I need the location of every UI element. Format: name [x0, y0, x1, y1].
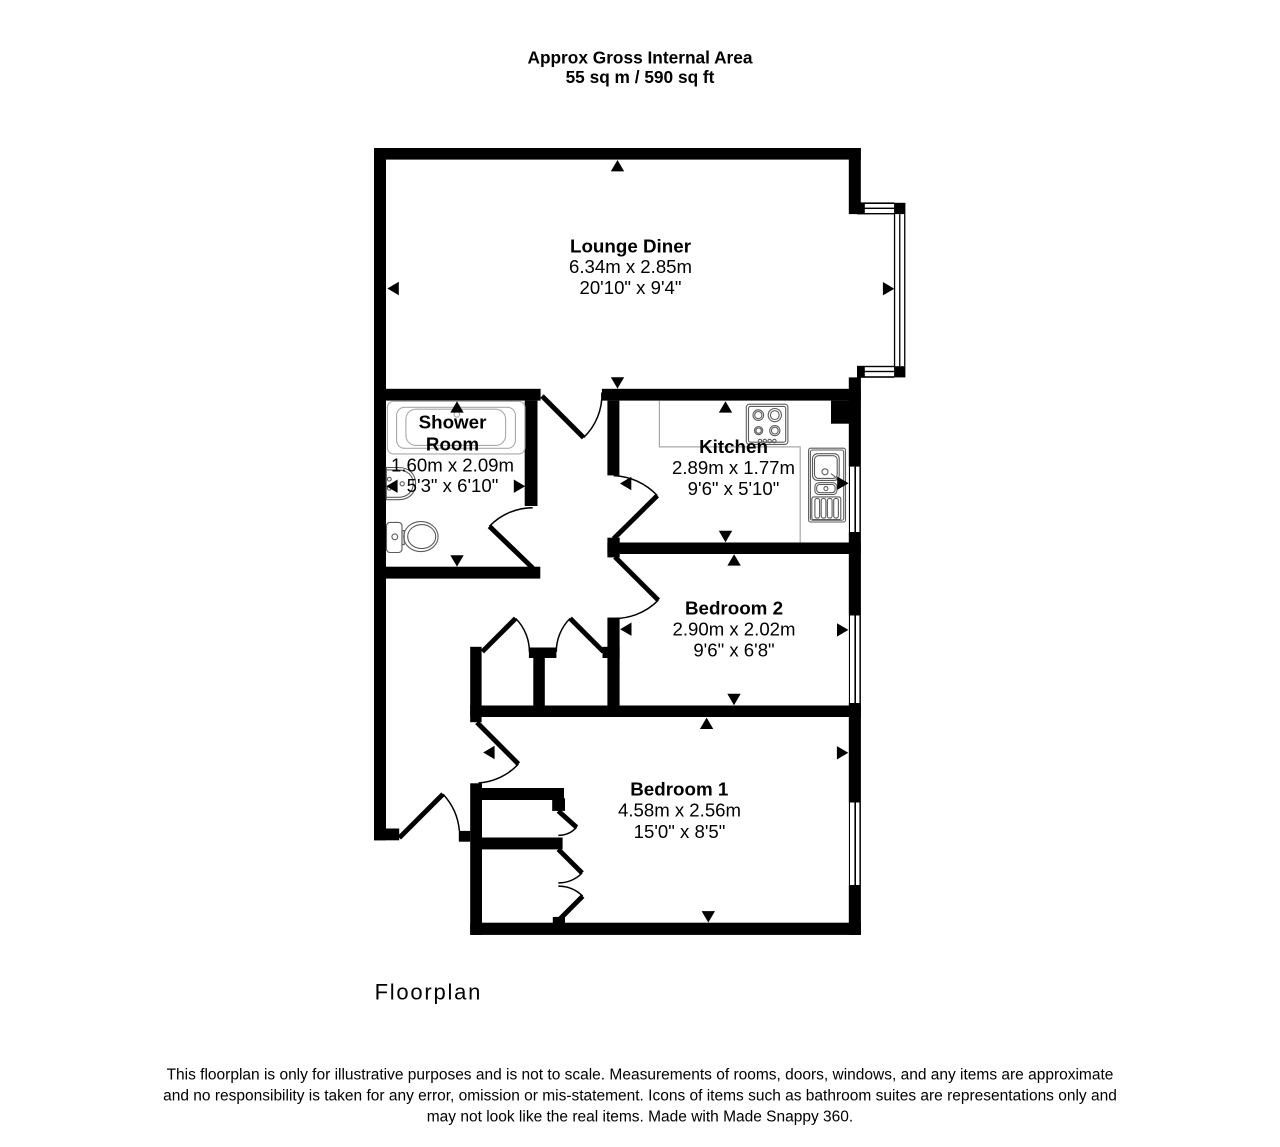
svg-text:This floorplan is only for ill: This floorplan is only for illustrative … — [167, 1067, 1114, 1084]
svg-text:may not look like the real ite: may not look like the real items. Made w… — [427, 1109, 853, 1126]
svg-text:6.34m x 2.85m: 6.34m x 2.85m — [569, 256, 692, 277]
svg-text:1.60m x 2.09m: 1.60m x 2.09m — [391, 455, 514, 476]
svg-text:55 sq m / 590 sq ft: 55 sq m / 590 sq ft — [566, 67, 715, 87]
svg-text:Kitchen: Kitchen — [699, 436, 768, 457]
svg-text:Floorplan: Floorplan — [375, 980, 482, 1005]
svg-text:Bedroom 1: Bedroom 1 — [630, 779, 728, 800]
svg-text:20'10" x 9'4": 20'10" x 9'4" — [580, 277, 682, 298]
svg-text:2.89m x 1.77m: 2.89m x 1.77m — [672, 457, 795, 478]
svg-text:Room: Room — [426, 434, 479, 455]
svg-text:and no responsibility is taken: and no responsibility is taken for any e… — [163, 1088, 1117, 1105]
svg-text:2.90m x 2.02m: 2.90m x 2.02m — [673, 619, 796, 640]
svg-text:Bedroom 2: Bedroom 2 — [685, 598, 783, 619]
svg-text:Approx Gross Internal Area: Approx Gross Internal Area — [527, 47, 752, 67]
svg-text:9'6" x 5'10": 9'6" x 5'10" — [688, 478, 780, 499]
svg-text:9'6" x 6'8": 9'6" x 6'8" — [693, 640, 774, 661]
svg-text:Shower: Shower — [419, 411, 488, 432]
svg-text:15'0" x 8'5": 15'0" x 8'5" — [634, 821, 726, 842]
svg-text:Lounge Diner: Lounge Diner — [570, 235, 692, 256]
svg-text:5'3" x 6'10": 5'3" x 6'10" — [407, 475, 499, 496]
svg-text:4.58m x 2.56m: 4.58m x 2.56m — [618, 800, 741, 821]
